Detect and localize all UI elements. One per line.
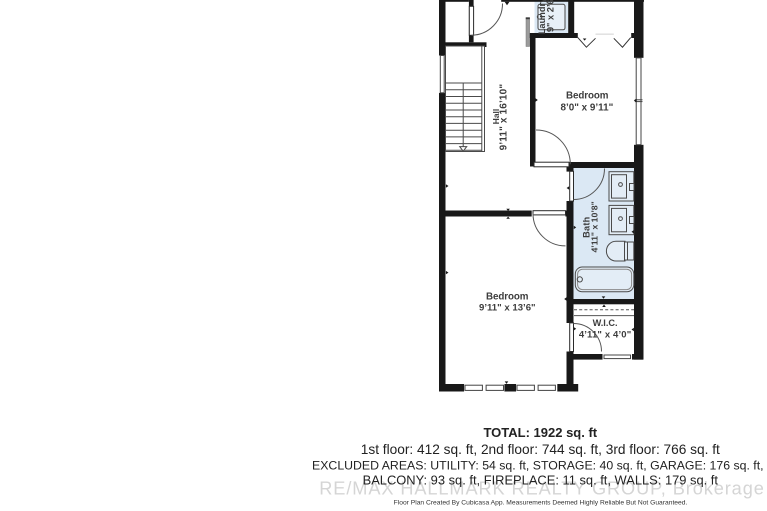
svg-text:9’11" x 16’10": 9’11" x 16’10" xyxy=(499,84,510,151)
svg-text:8’0" x 9’11": 8’0" x 9’11" xyxy=(561,102,614,113)
svg-text:EXCLUDED AREAS: UTILITY: 54 sq: EXCLUDED AREAS: UTILITY: 54 sq. ft, STOR… xyxy=(312,458,764,472)
svg-text:Bedroom: Bedroom xyxy=(486,291,529,302)
svg-text:1st floor: 412 sq. ft, 2nd flo: 1st floor: 412 sq. ft, 2nd floor: 744 sq… xyxy=(361,442,720,457)
svg-text:Floor Plan Created By Cubicasa: Floor Plan Created By Cubicasa App. Meas… xyxy=(394,500,688,507)
svg-text:9" x 2’6": 9" x 2’6" xyxy=(545,0,555,32)
svg-text:4’11" x 4’0": 4’11" x 4’0" xyxy=(579,329,632,340)
svg-text:TOTAL: 1922 sq. ft: TOTAL: 1922 sq. ft xyxy=(483,425,597,440)
svg-text:4’11" x 10’8": 4’11" x 10’8" xyxy=(590,201,600,252)
svg-text:Bedroom: Bedroom xyxy=(566,91,609,102)
svg-text:BALCONY: 93 sq. ft, FIREPLACE:: BALCONY: 93 sq. ft, FIREPLACE: 11 sq. ft… xyxy=(363,472,719,487)
svg-text:9’11" x 13’6": 9’11" x 13’6" xyxy=(479,303,536,314)
svg-text:W.I.C.: W.I.C. xyxy=(593,318,618,328)
